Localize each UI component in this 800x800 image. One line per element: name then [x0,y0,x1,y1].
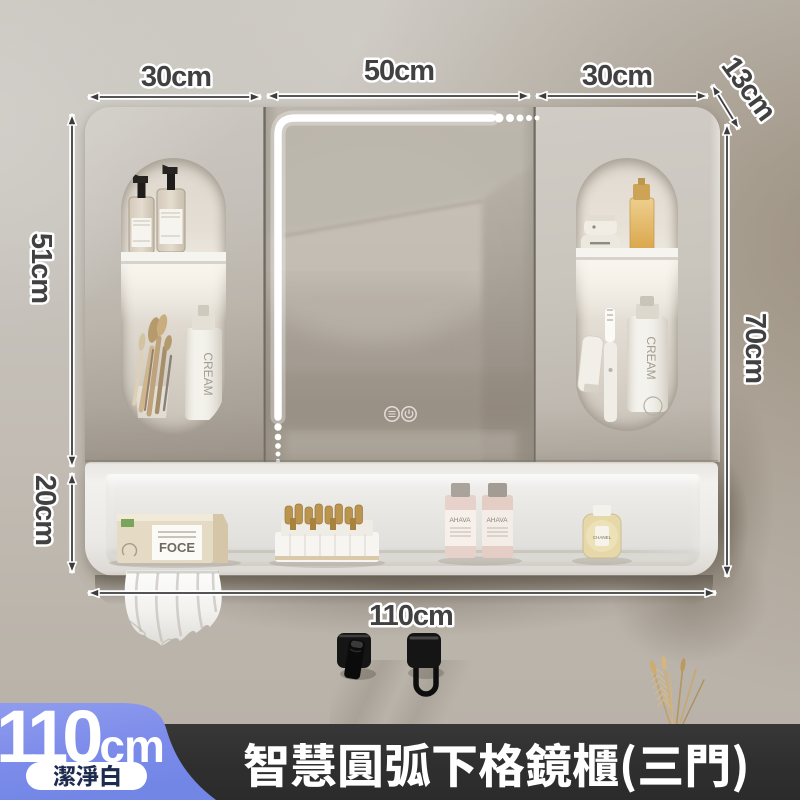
svg-text:110cm: 110cm [369,600,453,632]
svg-text:50cm: 50cm [364,55,434,87]
svg-text:13cm: 13cm [715,51,782,127]
svg-text:51cm: 51cm [25,233,57,303]
svg-text:70cm: 70cm [739,313,771,383]
svg-text:30cm: 30cm [582,60,652,92]
svg-text:30cm: 30cm [141,61,211,93]
svg-text:20cm: 20cm [29,475,61,545]
